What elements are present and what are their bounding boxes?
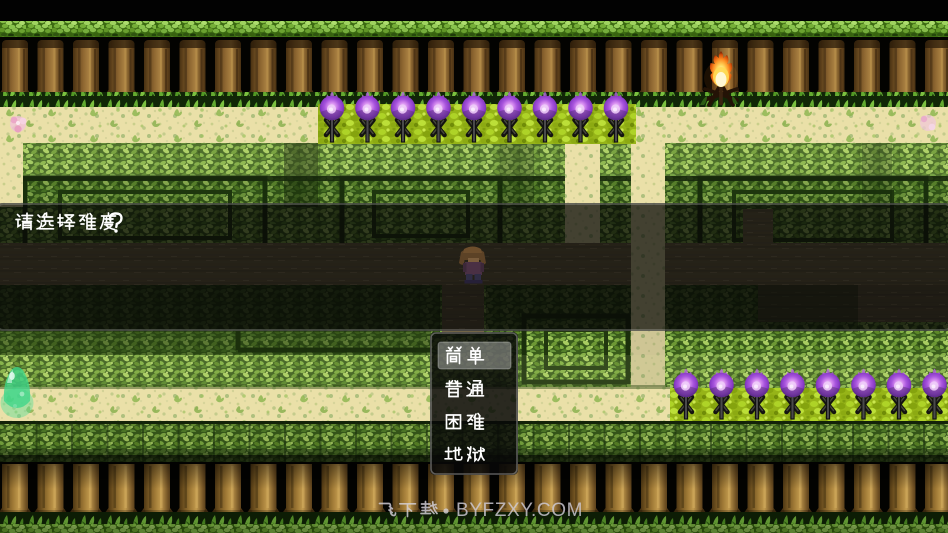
svg-text:BYFZXY.COM: BYFZXY.COM <box>456 500 583 521</box>
